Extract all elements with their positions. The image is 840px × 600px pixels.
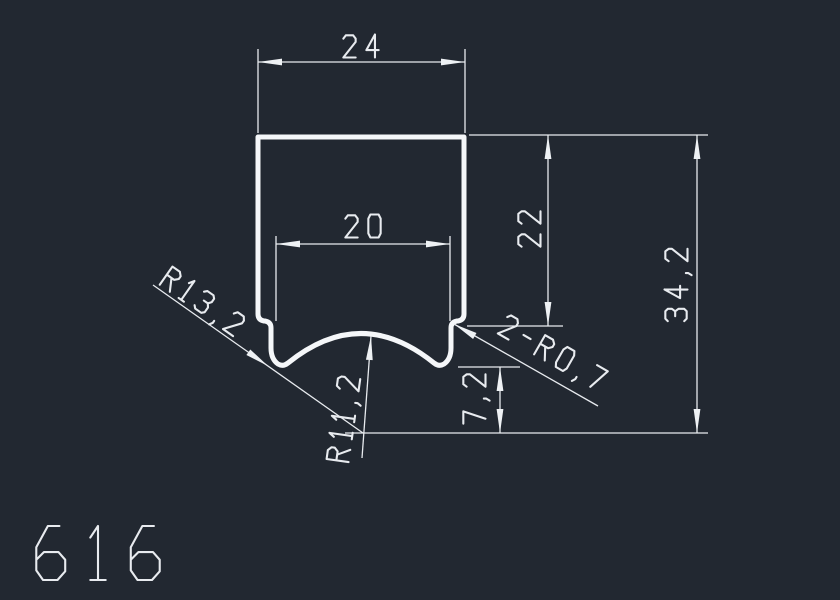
dimension-arrowhead <box>258 59 282 66</box>
dim-height-22-label <box>518 211 540 246</box>
profile-outline[interactable] <box>258 137 464 365</box>
leader-radius-R11-2[interactable] <box>326 336 375 463</box>
drawing-number-label <box>36 526 159 580</box>
dimension-arrowhead <box>276 241 300 248</box>
cad-drawing-canvas[interactable] <box>0 0 840 600</box>
dimension-arrowhead <box>694 135 701 159</box>
dim-height-7-2[interactable] <box>458 367 520 433</box>
dim-width-20-label <box>345 215 380 238</box>
dimension-arrowhead <box>545 302 552 326</box>
dim-height-22[interactable] <box>467 135 708 326</box>
leader-fillet-2-R0-7[interactable] <box>452 313 608 406</box>
dimension-arrowhead <box>694 409 701 433</box>
dim-width-24-label <box>343 35 378 58</box>
dim-height-7-2-label <box>463 374 489 423</box>
cad-viewport[interactable] <box>0 0 840 600</box>
leader-radius-R11-2-label <box>326 376 365 463</box>
dimension-arrowhead <box>497 367 504 391</box>
dim-width-24[interactable] <box>258 35 465 134</box>
dimension-arrowhead <box>441 59 465 66</box>
dim-height-34-2-label <box>665 249 692 321</box>
dimension-arrowhead <box>426 241 450 248</box>
dimension-arrowhead <box>246 349 270 368</box>
dim-width-20[interactable] <box>276 215 450 322</box>
dimension-arrowhead <box>545 135 552 159</box>
leader-radius-R13-2-label <box>157 266 246 340</box>
drawing-number[interactable] <box>36 526 159 580</box>
dimension-arrowhead <box>497 409 504 433</box>
dim-height-34-2[interactable] <box>345 135 708 433</box>
